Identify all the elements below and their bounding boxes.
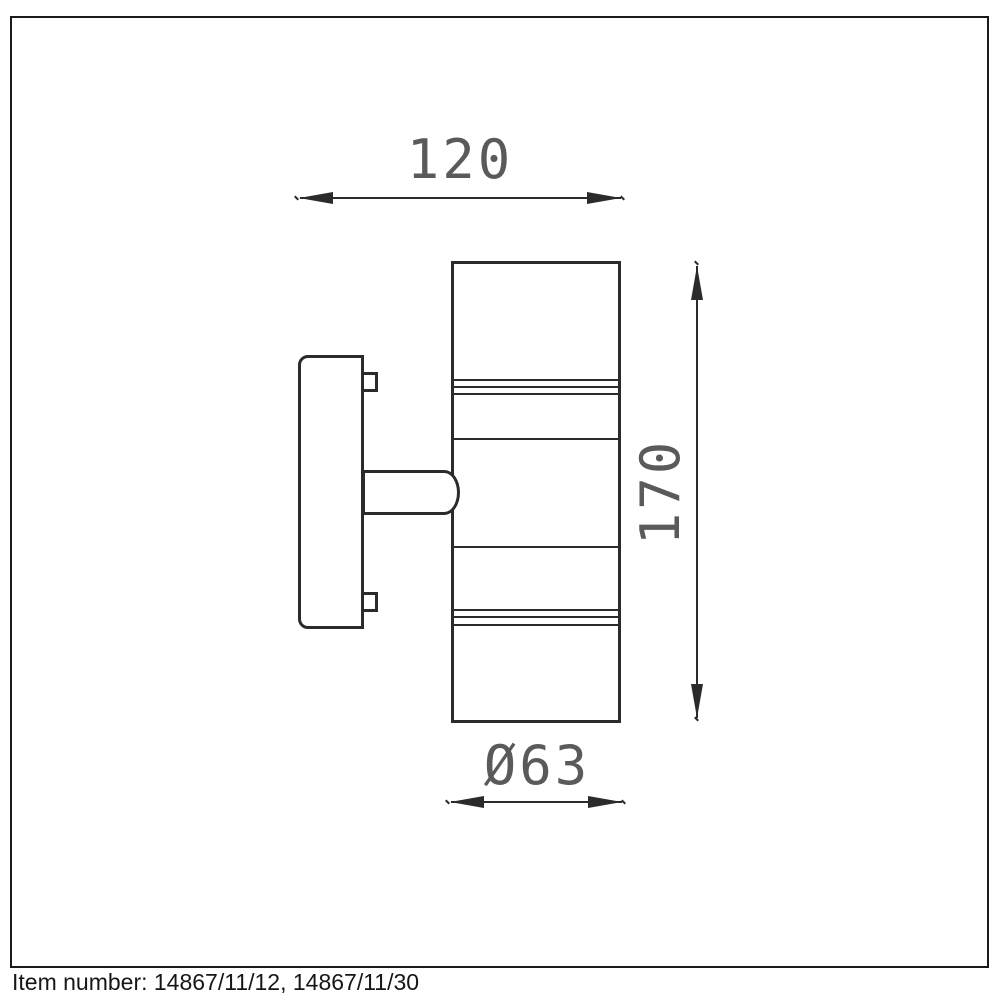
dimension-diameter-label: Ø63 [427,738,647,794]
lamp-body-rib-line [454,616,618,618]
item-number-text: Item number: 14867/11/12, 14867/11/30 [12,969,419,996]
lamp-body-rib-line [454,609,618,611]
lamp-body-rib-line [454,393,618,395]
arrowhead-down-icon [691,684,703,718]
arrowhead-left-icon [299,192,333,204]
dimension-width-line [300,197,621,199]
arrowhead-left-icon [450,796,484,808]
lamp-body-rib-line [454,379,618,381]
lamp-body-seam-line [454,438,618,440]
lamp-body-seam-line [454,546,618,548]
wall-plate [298,355,364,629]
lamp-body-rib-line [454,386,618,388]
page-root: 120 170 Ø63 Item number: 14867/11/12, 14… [0,0,1000,1005]
arrowhead-right-icon [588,796,622,808]
arrowhead-up-icon [691,266,703,300]
arrowhead-right-icon [587,192,621,204]
mounting-clip-top [361,372,378,392]
lamp-body-rib-line [454,624,618,626]
support-arm [362,470,460,515]
dimension-height-label: 170 [633,372,689,612]
lamp-body [451,261,621,723]
dimension-width-label: 120 [340,132,580,188]
dimension-height-line [696,266,698,718]
mounting-clip-bottom [361,592,378,612]
